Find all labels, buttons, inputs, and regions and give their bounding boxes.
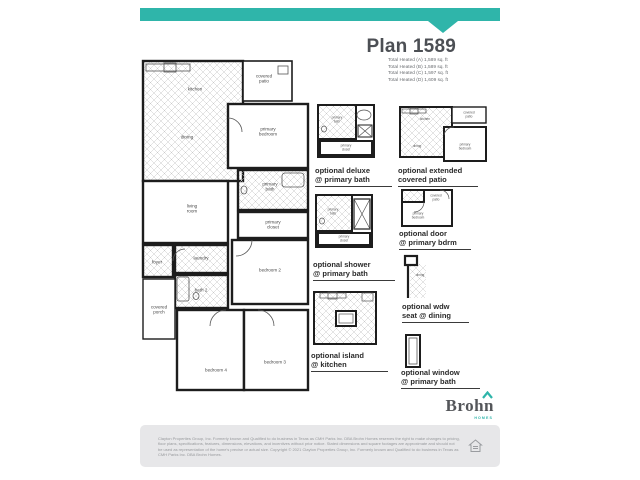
room-label-kitchen: kitchen bbox=[180, 86, 210, 91]
thumb-label-covered-patio: covered patio bbox=[428, 194, 444, 201]
room-label-living-room: living room bbox=[184, 204, 200, 215]
thumb-label-primary-closet: primary closet bbox=[335, 235, 353, 242]
heated-sqft-specs: Total Heated (A) 1,589 sq. ft Total Heat… bbox=[388, 58, 448, 84]
teal-banner bbox=[140, 8, 500, 21]
brohn-wordmark: Brohn bbox=[446, 396, 495, 415]
room-label-primary-bath: primary bath bbox=[260, 182, 280, 193]
disclaimer-footer: Clayton Properties Group, Inc. Formerly … bbox=[140, 425, 500, 467]
thumb-label-primary-bath: primary bath bbox=[329, 116, 345, 123]
main-floor-plan-drawing bbox=[140, 58, 312, 394]
option-deluxe-primary-bath-plan: primary bath primary closet bbox=[316, 103, 376, 165]
caption-optional-deluxe: optional deluxe @ primary bath bbox=[315, 167, 392, 187]
caption-line-2: seat @ dining bbox=[402, 311, 451, 320]
option-deluxe-drawing bbox=[316, 103, 376, 165]
thumb-label-primary-bedroom: primary bedroom bbox=[456, 143, 474, 150]
room-label-dining: dining bbox=[172, 134, 202, 139]
room-label-covered-porch: covered porch bbox=[149, 305, 169, 316]
main-floor-plan: kitchen dining covered patio primary bed… bbox=[140, 58, 312, 394]
option-shower-drawing bbox=[314, 193, 376, 255]
room-label-bath-2: bath 2 bbox=[187, 287, 215, 292]
caption-optional-wdw-seat: optional wdw seat @ dining bbox=[402, 303, 469, 323]
thumb-label-primary-bedroom: primary bedroom bbox=[409, 212, 427, 219]
flyer-page: Plan 1589 Total Heated (A) 1,589 sq. ft … bbox=[0, 0, 640, 480]
spec-line-a: Total Heated (A) 1,589 sq. ft bbox=[388, 58, 448, 65]
option-window-primary-bath-plan bbox=[402, 333, 424, 369]
caption-optional-island: optional island @ kitchen bbox=[311, 352, 388, 372]
caption-optional-extended-patio: optional extended covered patio bbox=[398, 167, 478, 187]
option-window-drawing bbox=[402, 333, 424, 369]
room-label-primary-bedroom: primary bedroom bbox=[257, 127, 279, 138]
option-island-drawing bbox=[312, 290, 380, 348]
thumb-label-primary-closet: primary closet bbox=[337, 144, 355, 151]
thumb-label-dining: dining bbox=[412, 274, 428, 278]
room-label-foyer: foyer bbox=[146, 259, 168, 264]
caption-optional-shower: optional shower @ primary bath bbox=[313, 261, 395, 281]
option-extended-patio-plan: kitchen dining covered patio primary bed… bbox=[398, 105, 490, 167]
option-wdw-seat-dining-plan: dining bbox=[402, 254, 432, 300]
spec-line-c: Total Heated (C) 1,597 sq. ft bbox=[388, 71, 448, 78]
thumb-label-kitchen: kitchen bbox=[415, 118, 435, 122]
thumb-label-primary-bath: primary bath bbox=[325, 208, 341, 215]
thumb-label-dining: dining bbox=[408, 145, 426, 149]
caption-line-2: @ primary bath bbox=[315, 175, 370, 184]
caption-line-2: @ primary bath bbox=[401, 377, 456, 386]
caption-optional-window: optional window @ primary bath bbox=[401, 369, 480, 389]
caption-line-2: @ primary bath bbox=[313, 269, 368, 278]
caption-line-2: @ primary bdrm bbox=[399, 238, 457, 247]
equal-housing-icon bbox=[468, 439, 483, 453]
spec-line-d: Total Heated (D) 1,609 sq. ft bbox=[388, 78, 448, 85]
caption-line-2: @ kitchen bbox=[311, 360, 347, 369]
room-label-covered-patio: covered patio bbox=[254, 74, 274, 85]
option-door-primary-bdrm-plan: covered patio primary bedroom bbox=[400, 188, 456, 232]
roof-icon bbox=[482, 391, 493, 399]
page-title: Plan 1589 bbox=[360, 36, 456, 58]
room-label-primary-closet: primary closet bbox=[263, 220, 283, 231]
caption-line-2: covered patio bbox=[398, 175, 447, 184]
brohn-logo: Brohn HOMES bbox=[430, 396, 494, 420]
room-label-bedroom-2: bedroom 2 bbox=[254, 267, 286, 272]
teal-banner-arrow-icon bbox=[428, 21, 458, 33]
room-label-laundry: laundry bbox=[187, 255, 215, 260]
room-label-bedroom-4: bedroom 4 bbox=[200, 367, 232, 372]
brohn-homes-subtext: HOMES bbox=[430, 416, 494, 420]
option-shower-primary-bath-plan: primary bath primary closet bbox=[314, 193, 376, 255]
caption-optional-door: optional door @ primary bdrm bbox=[399, 230, 471, 250]
option-island-kitchen-plan bbox=[312, 290, 380, 348]
room-label-bedroom-3: bedroom 3 bbox=[259, 359, 291, 364]
legal-disclaimer-text: Clayton Properties Group, Inc. Formerly … bbox=[158, 436, 460, 457]
thumb-label-covered-patio: covered patio bbox=[461, 111, 477, 118]
